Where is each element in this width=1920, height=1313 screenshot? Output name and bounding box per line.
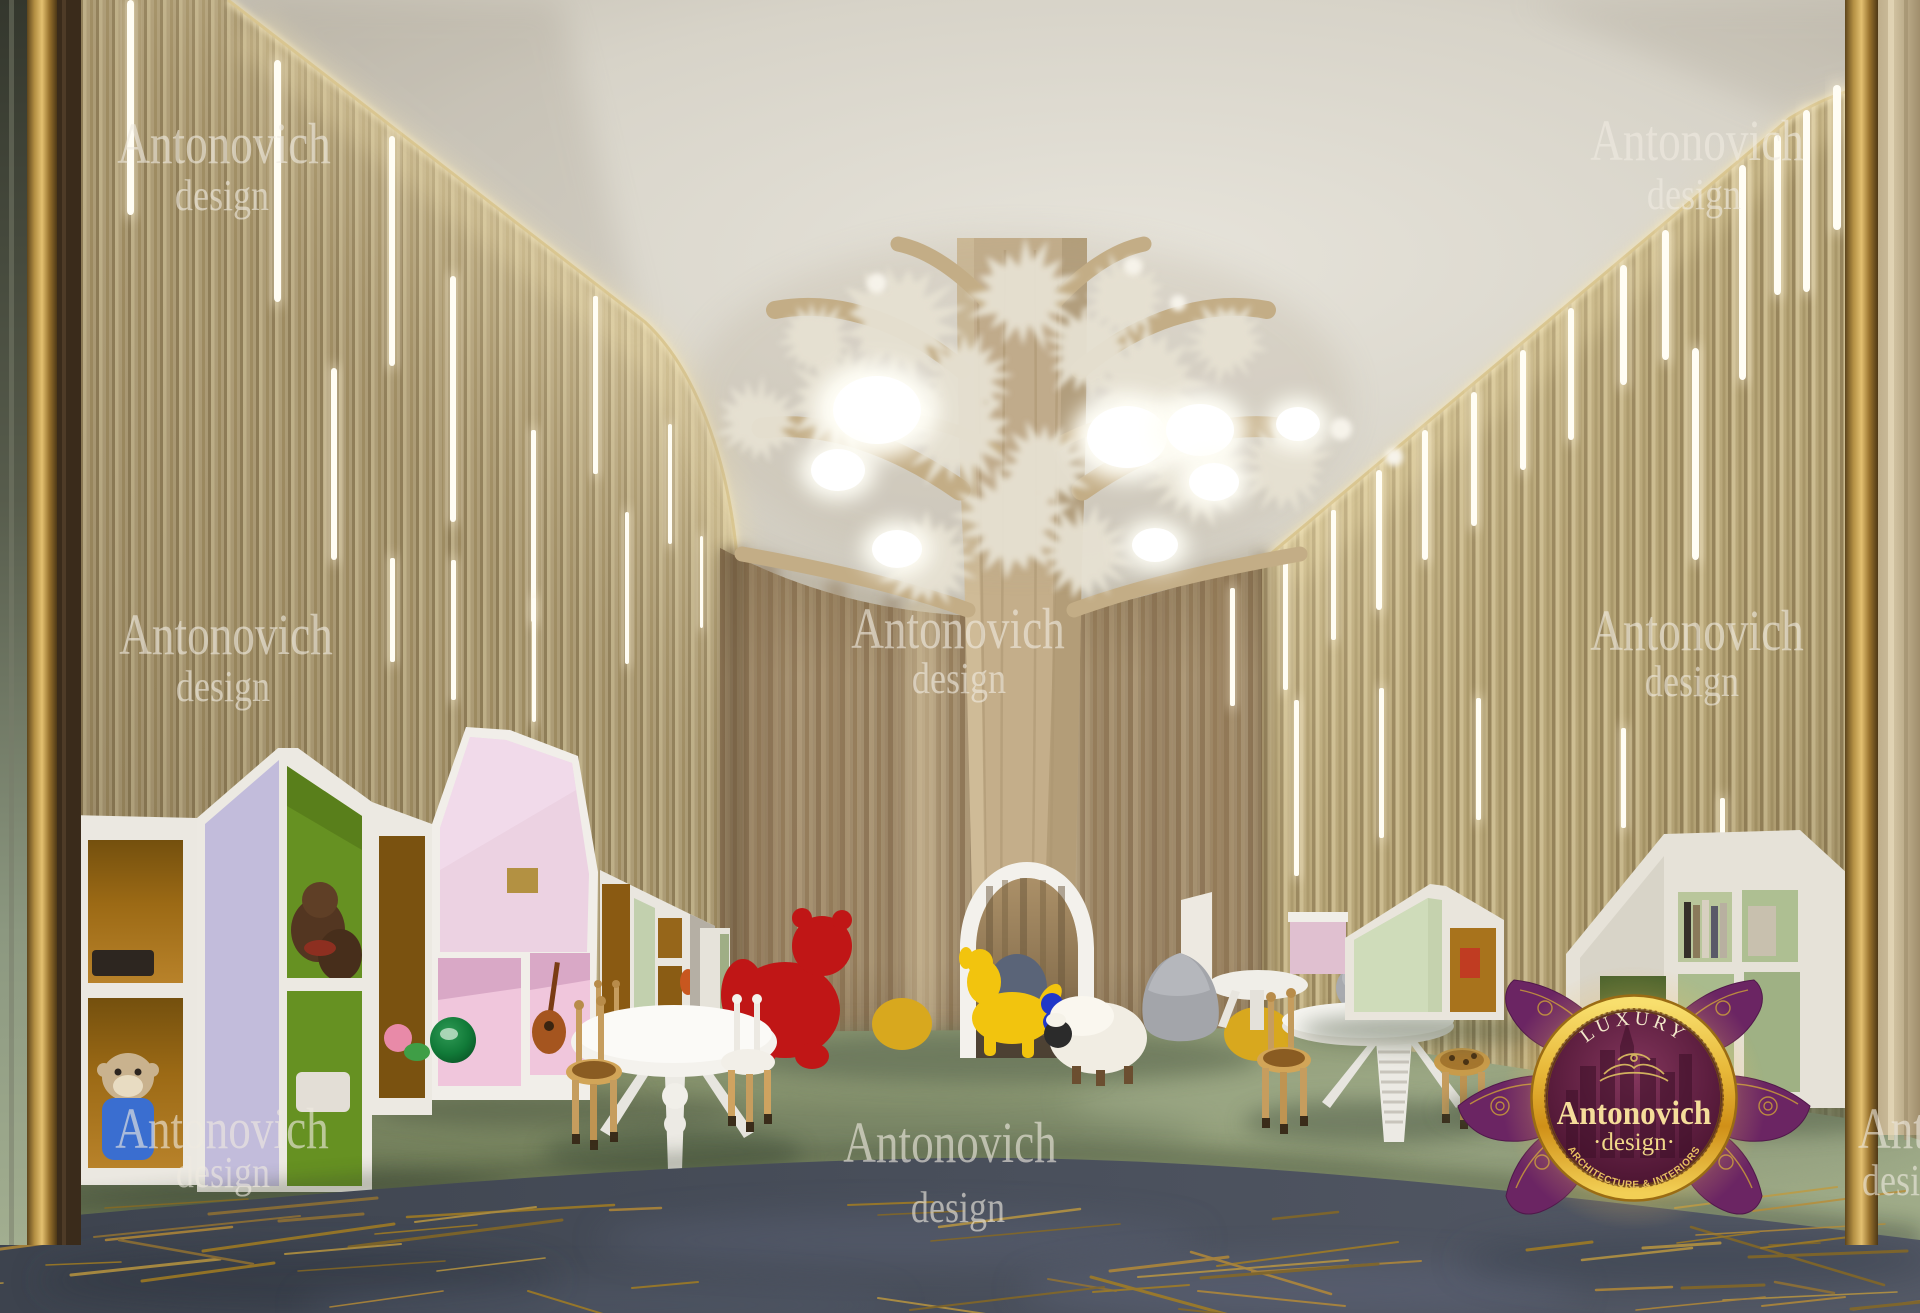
svg-text:design: design <box>1862 1156 1920 1205</box>
svg-text:design: design <box>1647 170 1741 219</box>
svg-text:Antonovich: Antonovich <box>119 604 333 668</box>
svg-text:Antonovich: Antonovich <box>1557 1095 1712 1132</box>
svg-text:design: design <box>1645 657 1739 706</box>
svg-text:Antonovich: Antonovich <box>843 1112 1057 1176</box>
svg-text:Antonovich: Antonovich <box>117 113 331 177</box>
svg-text:design: design <box>175 171 269 220</box>
svg-text:·design·: ·design· <box>1593 1129 1675 1156</box>
svg-text:design: design <box>912 654 1006 703</box>
svg-text:Antonovich: Antonovich <box>1590 600 1804 664</box>
svg-text:Antonovich: Antonovich <box>1590 110 1804 174</box>
svg-text:design: design <box>176 662 270 711</box>
svg-text:Antonovich: Antonovich <box>851 598 1065 662</box>
svg-text:design: design <box>911 1183 1005 1232</box>
svg-text:Antonovich: Antonovich <box>1858 1098 1920 1162</box>
svg-text:design: design <box>176 1148 270 1197</box>
